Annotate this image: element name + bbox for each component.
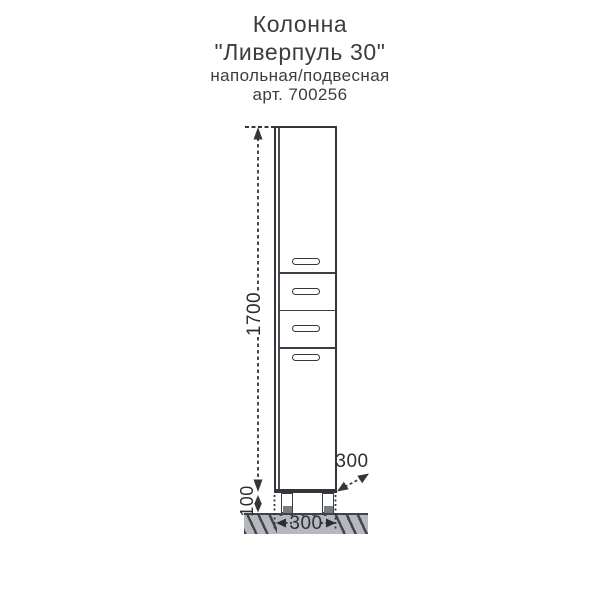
cabinet-front-edge-line xyxy=(278,128,280,489)
section-divider-line xyxy=(279,347,336,349)
leg-foot xyxy=(283,506,292,513)
width-dimension-label: 300 xyxy=(288,514,324,534)
drawer-handle xyxy=(292,325,320,332)
drawing-page: Колонна "Ливерпуль 30" напольная/подвесн… xyxy=(0,0,600,600)
leg-height-dimension-label: 100 xyxy=(237,482,255,520)
arrow-up-right-icon xyxy=(357,474,369,484)
depth-dimension-line xyxy=(340,476,366,490)
arrow-up-icon xyxy=(254,127,263,140)
door-handle xyxy=(292,258,320,265)
height-dimension-label: 1700 xyxy=(245,288,267,340)
product-name: Колонна xyxy=(0,10,600,38)
product-model: "Ливерпуль 30" xyxy=(0,38,600,66)
arrow-down-left-icon xyxy=(337,482,349,492)
title-block: Колонна "Ливерпуль 30" напольная/подвесн… xyxy=(0,10,600,104)
depth-dimension-label: 300 xyxy=(334,452,370,472)
product-mounting-type: напольная/подвесная xyxy=(0,66,600,85)
leg-foot xyxy=(324,506,333,513)
section-divider-line xyxy=(279,310,336,312)
section-divider-line xyxy=(279,272,336,274)
drawer-handle xyxy=(292,288,320,295)
door-handle xyxy=(292,354,320,361)
product-article: арт. 700256 xyxy=(0,85,600,104)
